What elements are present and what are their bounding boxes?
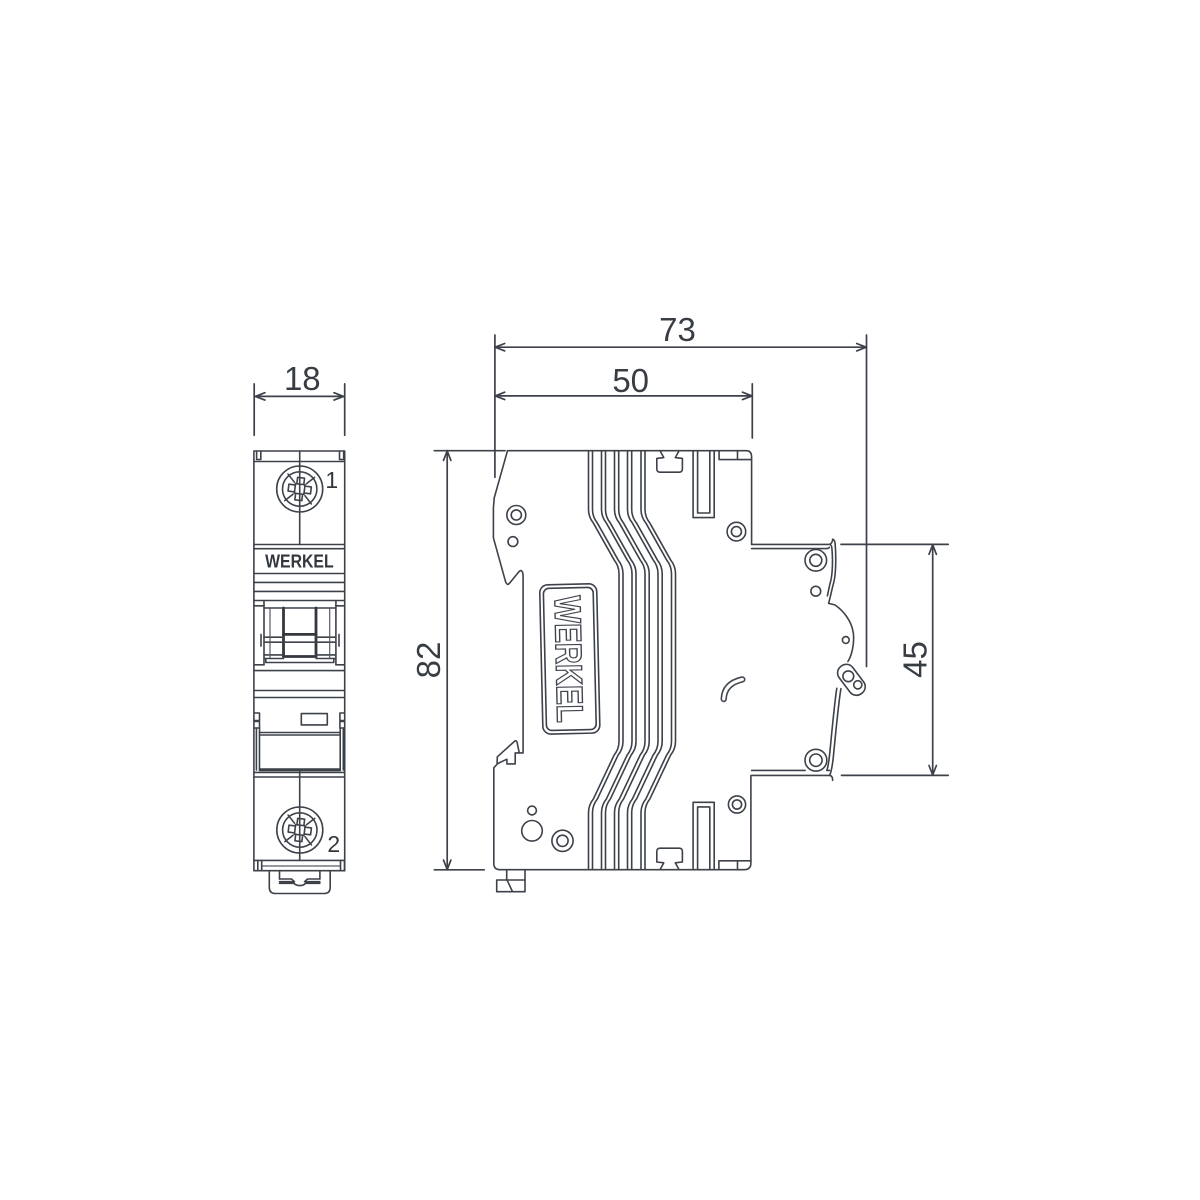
svg-text:18: 18 (284, 360, 321, 397)
svg-text:73: 73 (659, 311, 696, 348)
svg-text:2: 2 (327, 831, 340, 857)
svg-text:1: 1 (325, 467, 338, 493)
svg-text:45: 45 (897, 641, 934, 678)
svg-text:WERKEL: WERKEL (265, 551, 334, 572)
svg-text:WERKEL: WERKEL (547, 595, 591, 723)
svg-text:82: 82 (410, 642, 447, 679)
svg-text:50: 50 (612, 362, 649, 399)
